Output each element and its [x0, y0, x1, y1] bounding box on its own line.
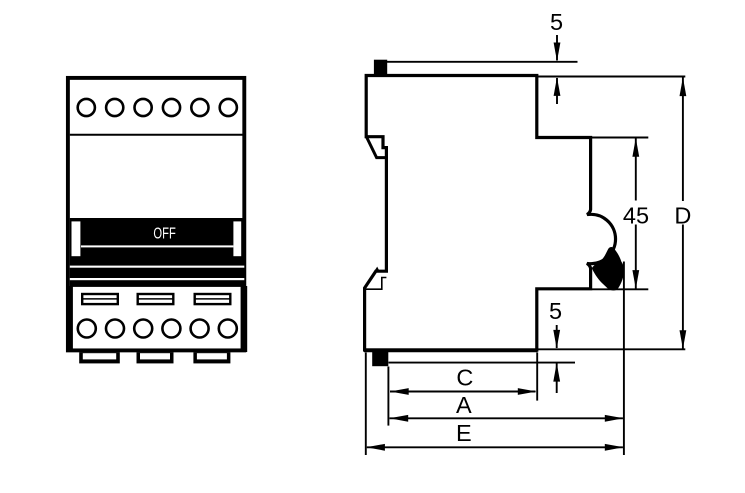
svg-text:OFF: OFF	[153, 223, 175, 242]
svg-text:5: 5	[549, 298, 562, 324]
svg-text:C: C	[456, 364, 473, 390]
svg-text:5: 5	[550, 9, 563, 35]
svg-text:45: 45	[623, 202, 649, 228]
svg-text:E: E	[456, 420, 472, 446]
svg-text:A: A	[456, 392, 472, 418]
svg-text:D: D	[674, 202, 691, 228]
